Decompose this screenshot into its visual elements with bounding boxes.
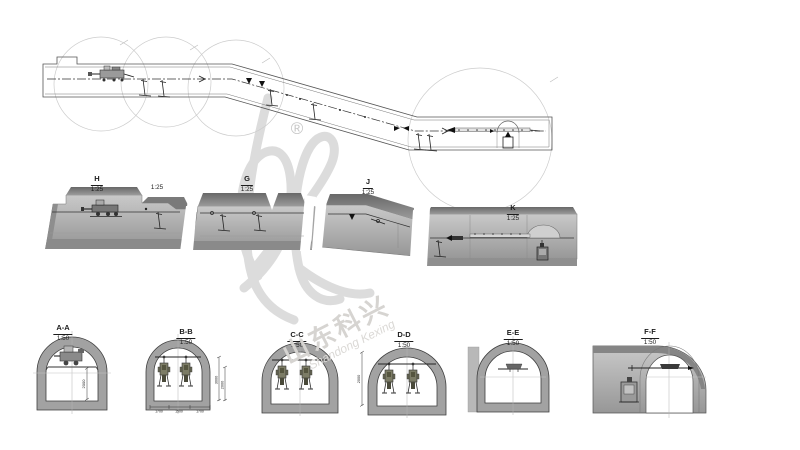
label-cross-dd: D-D 1:50: [394, 324, 413, 350]
svg-text:2000: 2000: [357, 375, 361, 383]
aa-dimension: 2000: [81, 367, 89, 401]
label-section-h: H 1:25: [91, 168, 103, 194]
section-h-profile: [45, 187, 203, 252]
ff-arch-opening: [646, 355, 693, 413]
dd-drill-right-icon: [406, 363, 420, 393]
detail-callout-circles: [54, 37, 558, 212]
cross-section-e-e: [468, 336, 549, 415]
plan-support-symbols: [139, 76, 448, 151]
registered-trademark-icon: ®: [291, 119, 304, 138]
tunnel-drawing-svg: ®: [0, 0, 800, 450]
svg-text:2000: 2000: [81, 379, 86, 389]
cad-drawing-canvas: ®: [0, 0, 800, 450]
svg-text:1700: 1700: [155, 410, 163, 414]
dd-dimension: 2000: [357, 351, 364, 407]
plan-machine-box: [490, 129, 513, 148]
cross-section-f-f: [593, 342, 706, 418]
plan-conveyor: [447, 127, 540, 133]
label-cross-bb: B-B 1:50: [176, 321, 195, 347]
bb-drill-right-icon: [179, 356, 193, 386]
svg-text:2000: 2000: [221, 381, 225, 389]
label-cross-ff: F-F 1:50: [641, 321, 659, 347]
svg-text:1700: 1700: [196, 410, 204, 414]
section-g-profile: [183, 191, 320, 251]
section-j-profile: [312, 194, 420, 258]
cross-section-a-a: 2000: [33, 331, 111, 414]
cc-drill-right-icon: [299, 359, 313, 389]
bb-drill-left-icon: [157, 356, 171, 386]
label-cross-aa: A-A 1:50: [53, 317, 72, 343]
label-extra-scale: 1:25: [151, 184, 163, 191]
label-cross-cc: C-C 1:50: [287, 324, 306, 350]
label-section-g: G 1:25: [241, 168, 253, 194]
label-cross-ee: E-E 1:50: [504, 322, 523, 348]
section-k-profile: [419, 207, 577, 267]
cross-section-d-d: 2000: [357, 342, 446, 418]
svg-text:3000: 3000: [215, 376, 219, 384]
svg-text:1500: 1500: [175, 410, 183, 414]
label-section-j: J 1:25: [362, 171, 374, 197]
label-section-k: K 1:25: [507, 197, 519, 223]
